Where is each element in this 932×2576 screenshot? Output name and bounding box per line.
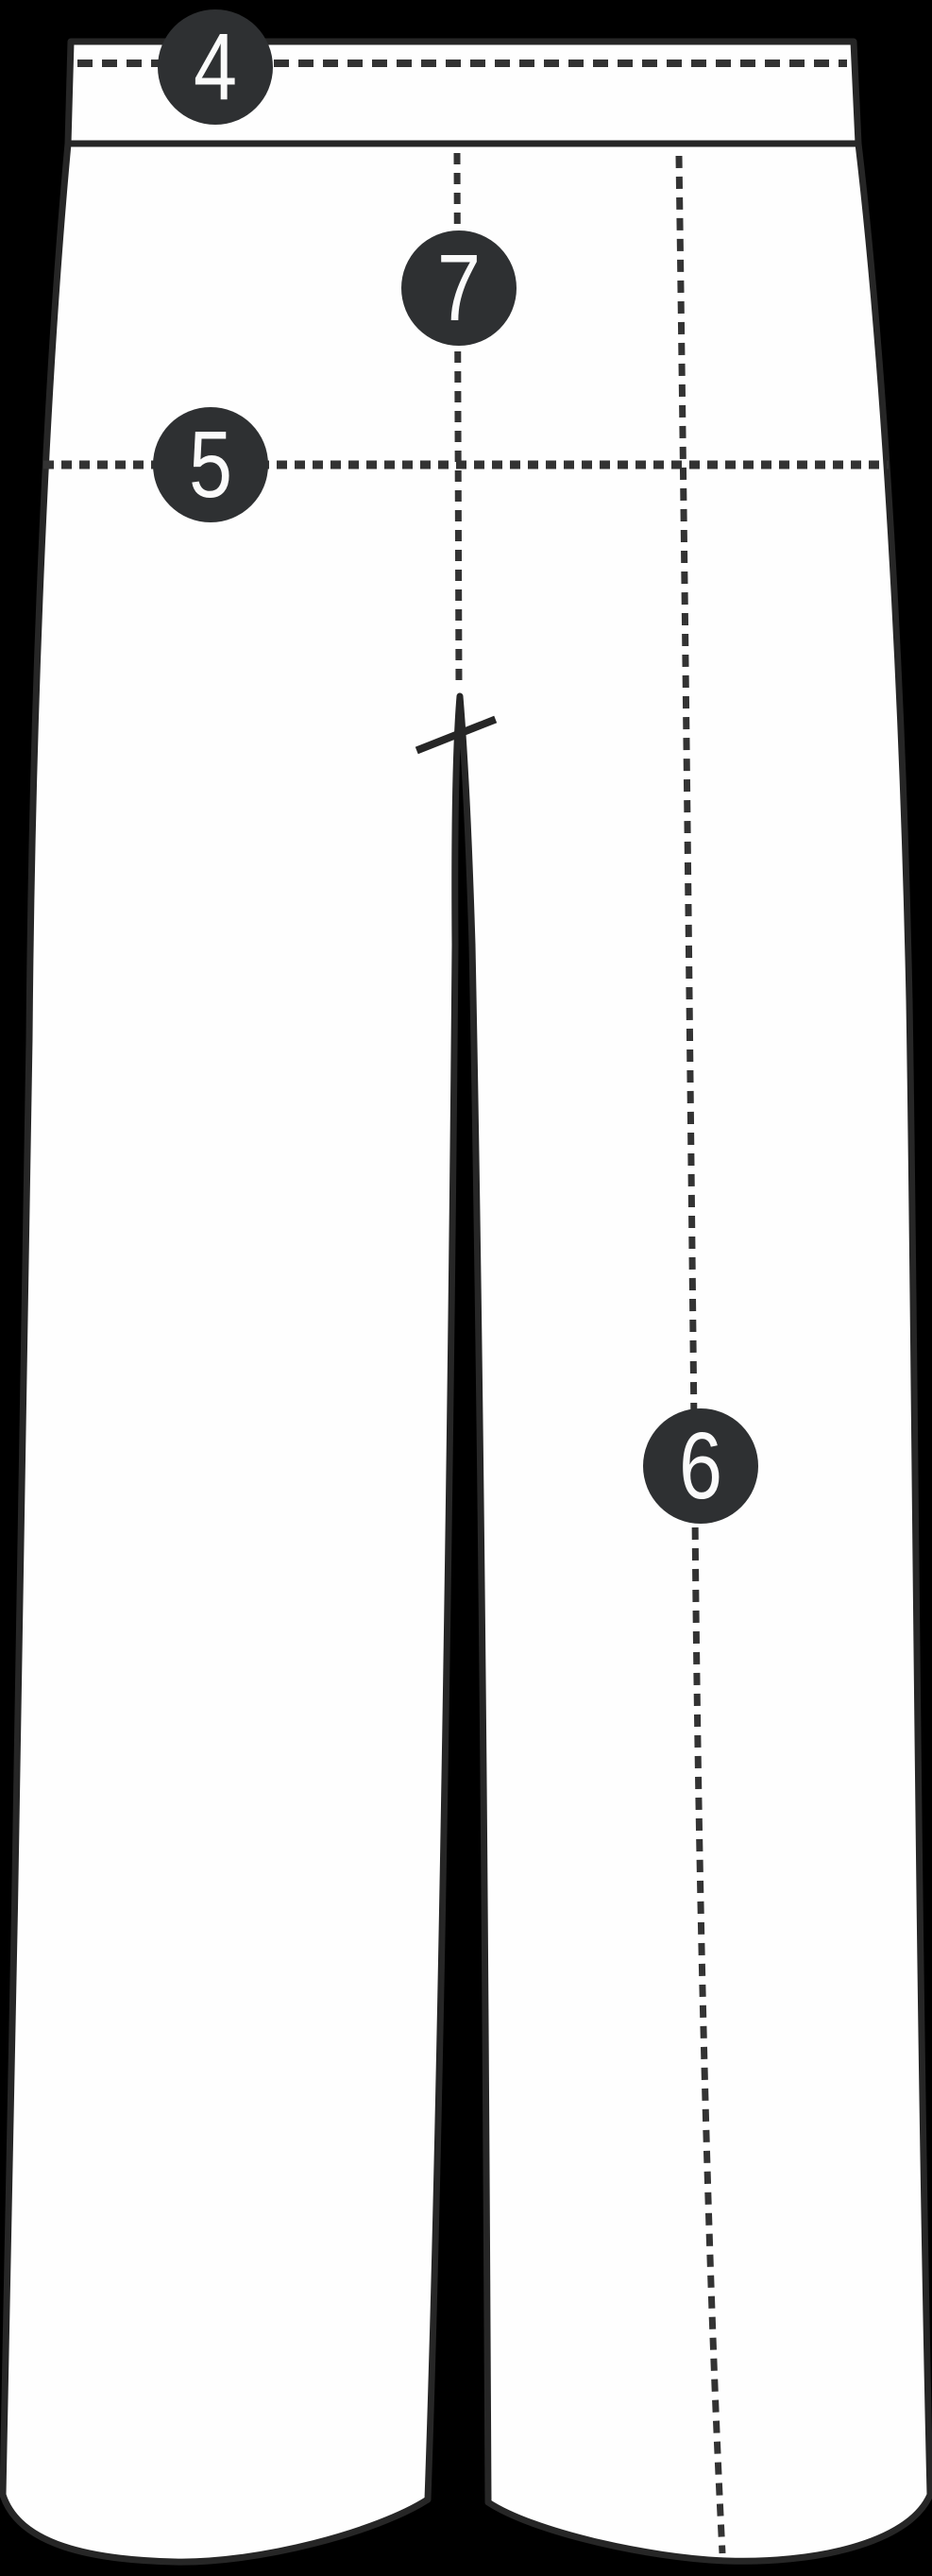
trousers-measurement-figure: 4 5 6 7 xyxy=(0,0,932,2576)
marker-4-label: 4 xyxy=(194,14,237,120)
marker-badge-4: 4 xyxy=(158,9,273,125)
marker-7-label: 7 xyxy=(437,235,481,341)
trousers-silhouette xyxy=(3,42,930,2562)
marker-badge-6: 6 xyxy=(643,1408,758,1524)
marker-badge-7: 7 xyxy=(401,230,517,346)
marker-5-label: 5 xyxy=(189,412,232,518)
marker-6-label: 6 xyxy=(679,1413,722,1519)
size-guide-diagram: 4 5 6 7 xyxy=(0,0,932,2576)
marker-badge-5: 5 xyxy=(153,407,268,522)
